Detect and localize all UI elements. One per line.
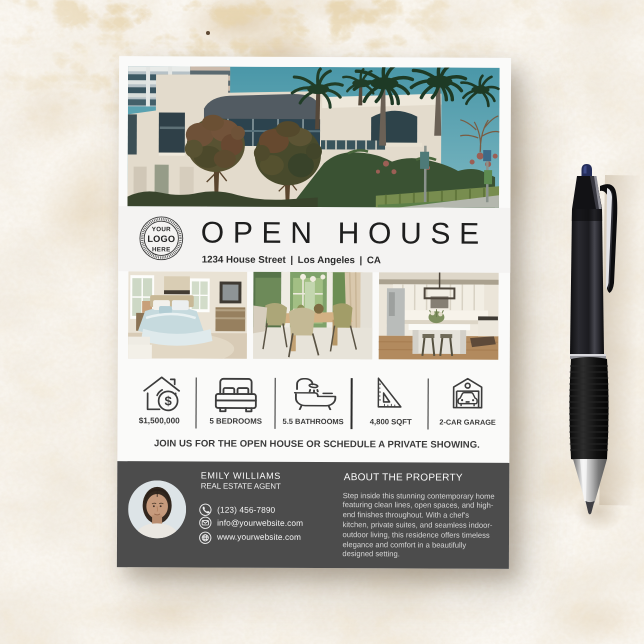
svg-text:LOGO: LOGO: [146, 233, 174, 243]
svg-text:HERE: HERE: [151, 246, 170, 253]
svg-text:$: $: [164, 393, 172, 408]
svg-text:YOUR: YOUR: [151, 226, 170, 233]
